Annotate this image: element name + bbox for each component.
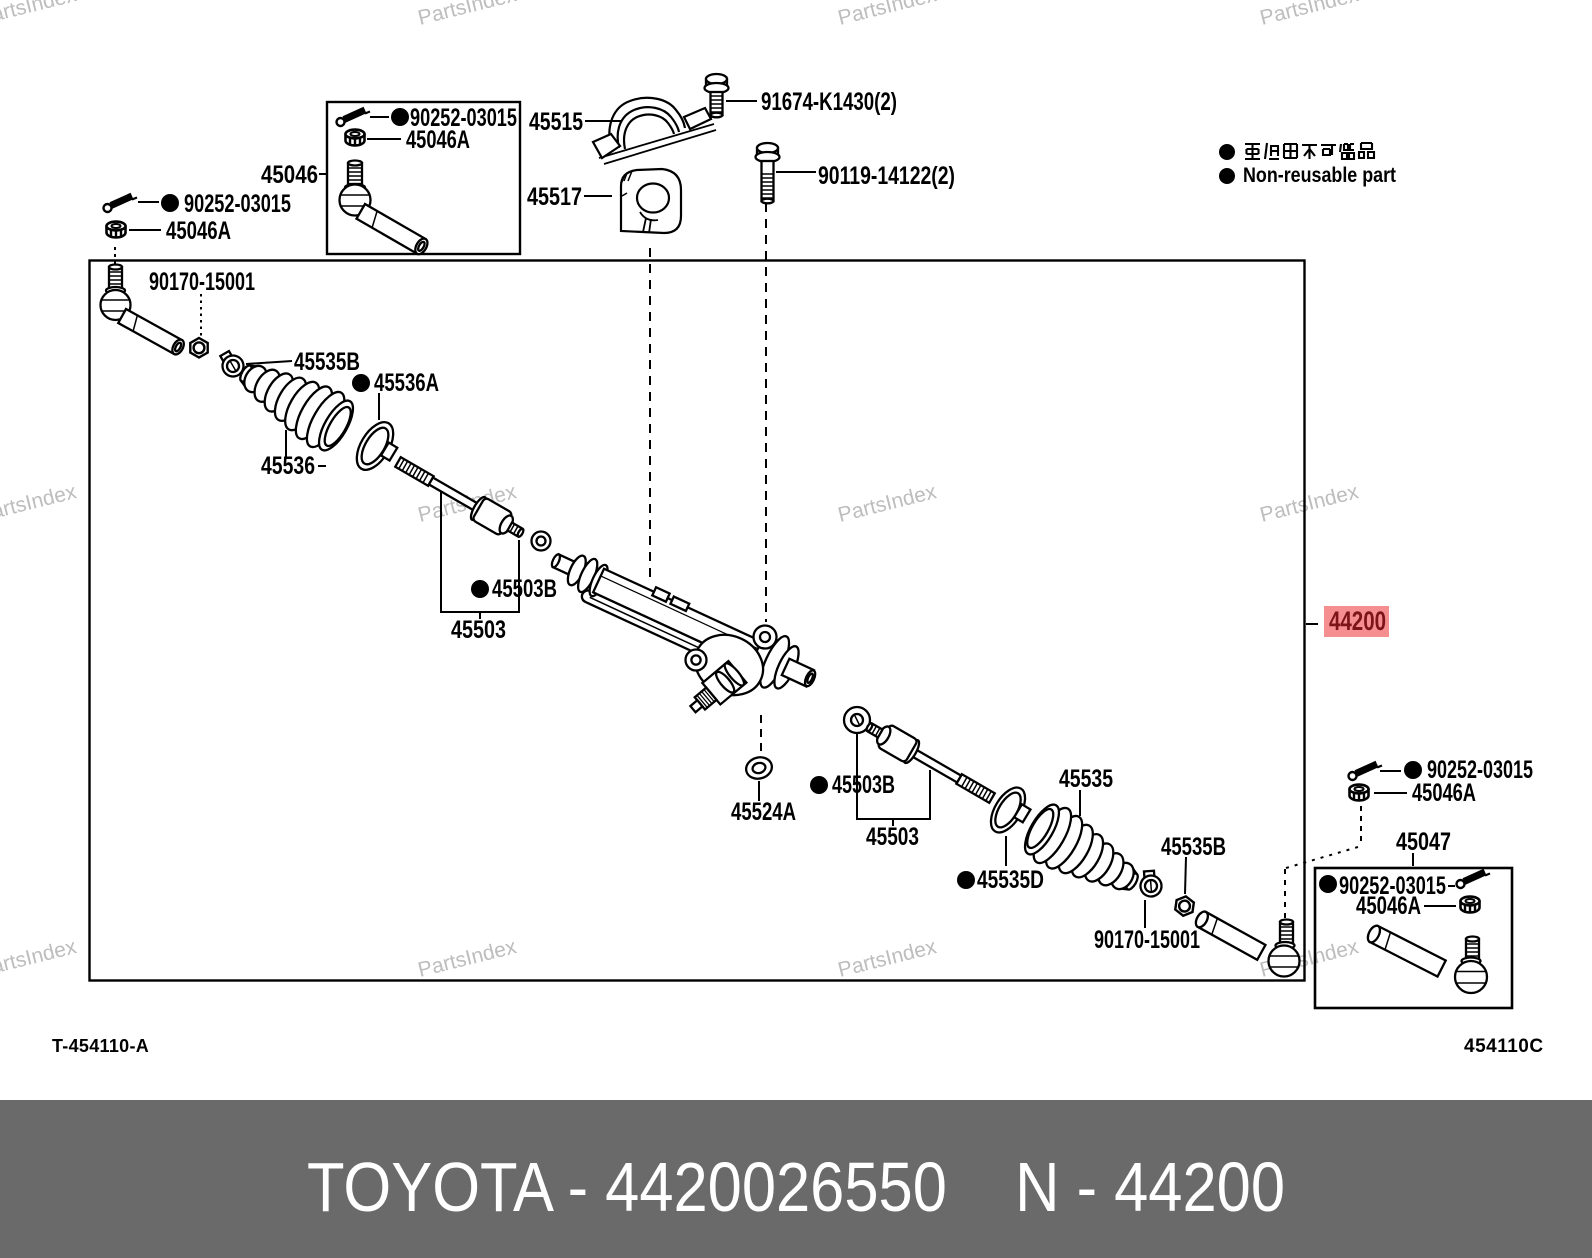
svg-text:Non-reusable part: Non-reusable part — [1243, 164, 1396, 187]
svg-text:45503B: 45503B — [492, 575, 557, 603]
svg-text:45535D: 45535D — [977, 866, 1044, 894]
svg-text:PartsIndex: PartsIndex — [1258, 0, 1361, 30]
svg-text:45535: 45535 — [1059, 765, 1113, 793]
svg-text:T-454110-A: T-454110-A — [52, 1036, 149, 1056]
svg-text:PartsIndex: PartsIndex — [836, 935, 939, 982]
svg-text:90170-15001: 90170-15001 — [149, 268, 255, 296]
svg-text:45046A: 45046A — [1412, 779, 1476, 807]
svg-text:PartsIndex: PartsIndex — [416, 0, 519, 30]
svg-text:45503B: 45503B — [832, 771, 895, 799]
svg-text:45515: 45515 — [529, 108, 583, 136]
svg-text:90252-03015: 90252-03015 — [184, 190, 291, 218]
svg-text:45536: 45536 — [261, 452, 315, 480]
svg-text:PartsIndex: PartsIndex — [416, 935, 519, 982]
svg-text:45536A: 45536A — [374, 369, 439, 397]
svg-text:PartsIndex: PartsIndex — [836, 480, 939, 527]
svg-text:45517: 45517 — [527, 183, 582, 211]
svg-text:45503: 45503 — [866, 823, 919, 851]
svg-text:45046: 45046 — [261, 161, 318, 189]
svg-text:44200: 44200 — [1329, 606, 1386, 636]
svg-text:PartsIndex: PartsIndex — [0, 0, 79, 30]
svg-text:45524A: 45524A — [731, 798, 796, 826]
svg-text:PartsIndex: PartsIndex — [0, 480, 79, 527]
svg-text:45047: 45047 — [1396, 828, 1451, 856]
svg-text:45535B: 45535B — [294, 348, 360, 376]
svg-text:90170-15001: 90170-15001 — [1094, 926, 1200, 954]
svg-text:45535B: 45535B — [1161, 833, 1226, 861]
svg-text:91674-K1430(2): 91674-K1430(2) — [761, 88, 897, 116]
svg-text:45503: 45503 — [451, 616, 506, 644]
svg-text:PartsIndex: PartsIndex — [0, 935, 79, 982]
svg-text:PartsIndex: PartsIndex — [1258, 480, 1361, 527]
svg-text:45046A: 45046A — [166, 217, 231, 245]
svg-text:PartsIndex: PartsIndex — [836, 0, 939, 30]
svg-text:TOYOTA - 4420026550 N - 442: TOYOTA - 4420026550 N - 44200 — [307, 1148, 1285, 1226]
svg-text:454110C: 454110C — [1464, 1036, 1544, 1057]
svg-text:90119-14122(2): 90119-14122(2) — [818, 162, 955, 190]
svg-text:45046A: 45046A — [1356, 892, 1421, 920]
svg-text:45046A: 45046A — [406, 126, 470, 154]
